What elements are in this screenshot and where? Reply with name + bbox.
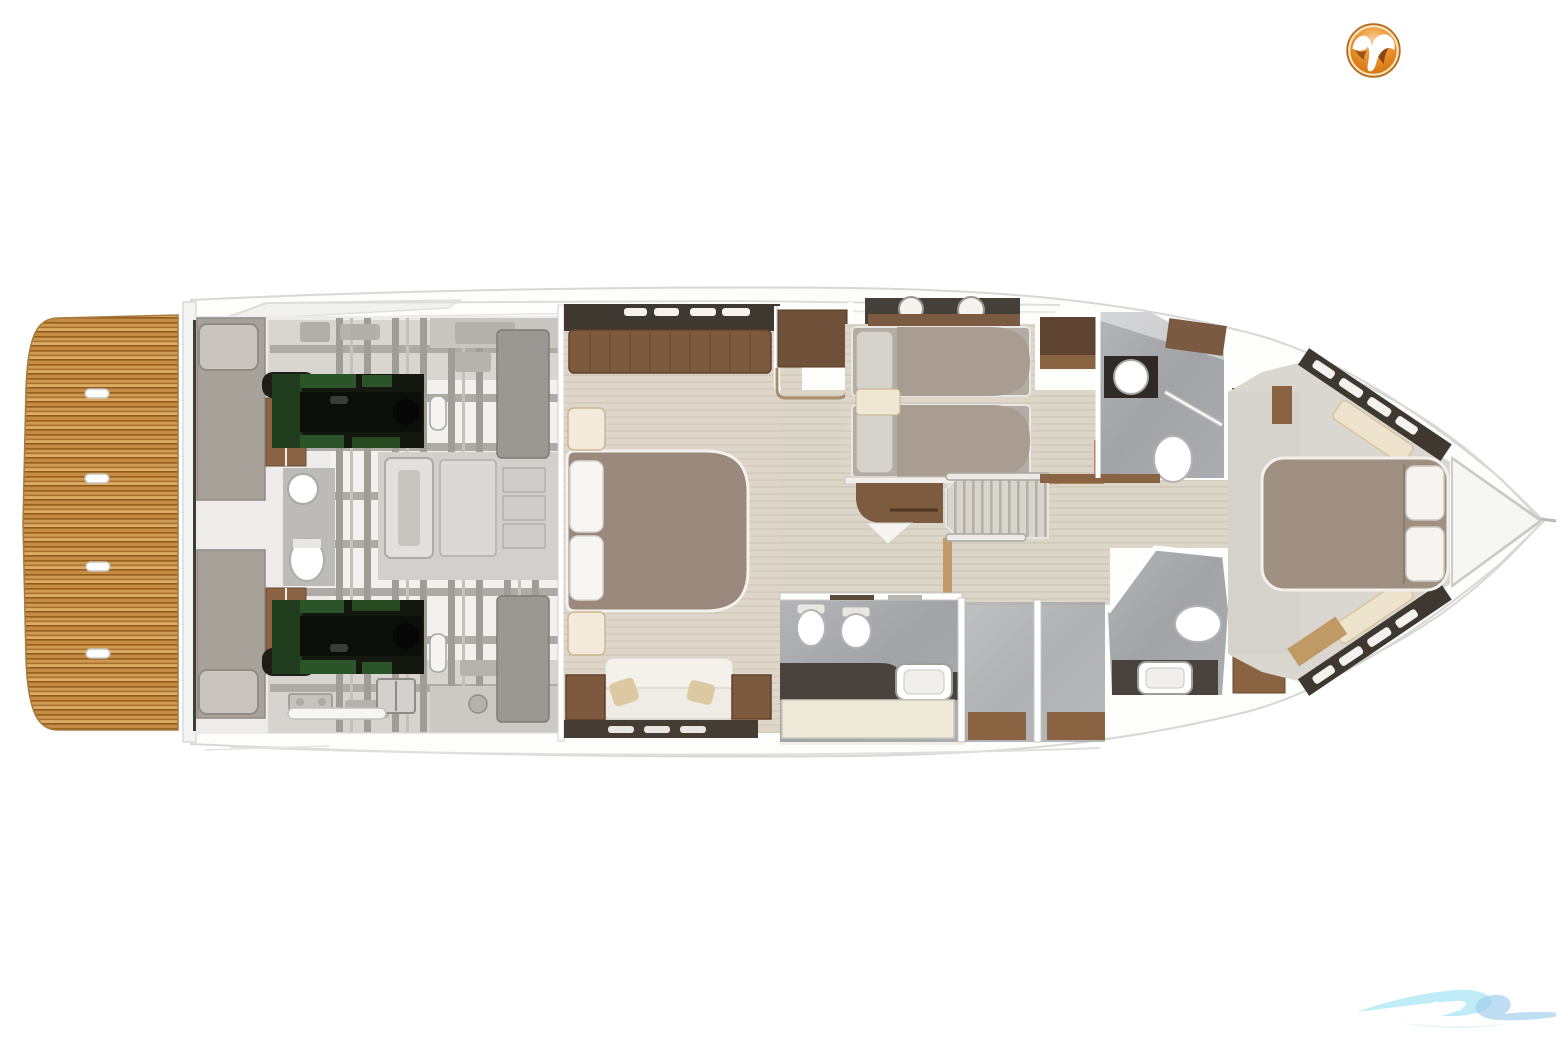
svg-text:.COM: .COM xyxy=(1426,998,1463,1014)
